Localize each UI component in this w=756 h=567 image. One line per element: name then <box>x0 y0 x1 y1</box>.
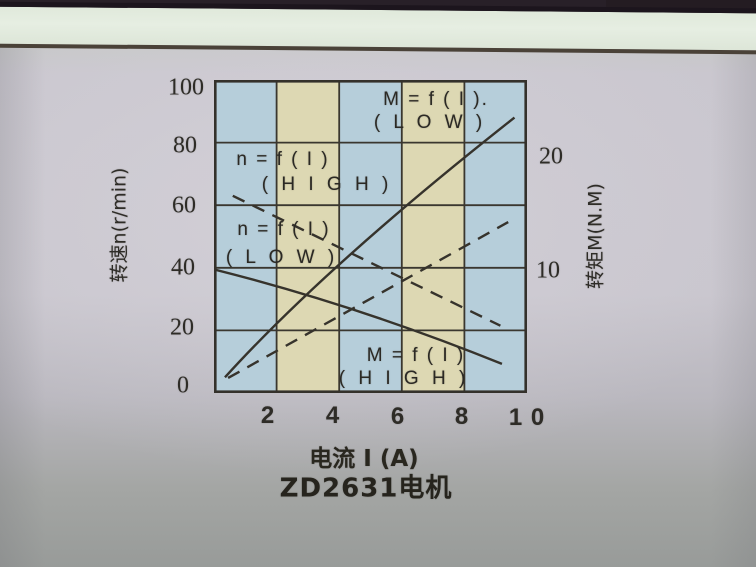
y-left-axis-title: 转速n(r/min) <box>105 168 132 283</box>
label-m-low-line2: ( L O W ) <box>374 112 486 134</box>
label-n-low-line1: n = f ( I ) <box>237 219 330 241</box>
x-tick-8: 8 <box>455 403 469 431</box>
page-header-band <box>0 2 756 55</box>
y-left-tick-100: 100 <box>168 75 204 102</box>
y-right-tick-10: 10 <box>536 258 560 285</box>
x-tick-2: 2 <box>261 402 275 430</box>
x-tick-6: 6 <box>391 403 405 431</box>
y-left-tick-80: 80 <box>173 133 197 160</box>
chart-caption: ZD2631电机 <box>280 468 453 505</box>
label-n-low-line2: ( L O W ) <box>226 247 338 269</box>
y-right-tick-20: 20 <box>539 144 563 171</box>
label-n-high-line1: n = f ( I ) <box>236 149 329 171</box>
book-page-photo: M = f ( I ). ( L O W ) n = f ( I ) ( H I… <box>0 0 756 567</box>
label-m-low-line1: M = f ( I ). <box>383 89 489 111</box>
x-tick-10: 1 0 <box>509 404 545 432</box>
x-tick-4: 4 <box>326 402 340 430</box>
y-left-tick-60: 60 <box>172 193 196 220</box>
y-right-axis-title: 转矩M(N.M) <box>581 183 608 289</box>
y-left-tick-0: 0 <box>177 373 189 400</box>
label-m-high-line1: M = f ( I ) <box>367 345 466 367</box>
plot-area: M = f ( I ). ( L O W ) n = f ( I ) ( H I… <box>214 80 527 393</box>
label-n-high-line2: ( H I G H ) <box>262 174 393 196</box>
y-left-tick-40: 40 <box>171 255 195 282</box>
label-m-high-line2: ( H I G H ) <box>339 368 470 390</box>
y-left-tick-20: 20 <box>170 315 194 342</box>
